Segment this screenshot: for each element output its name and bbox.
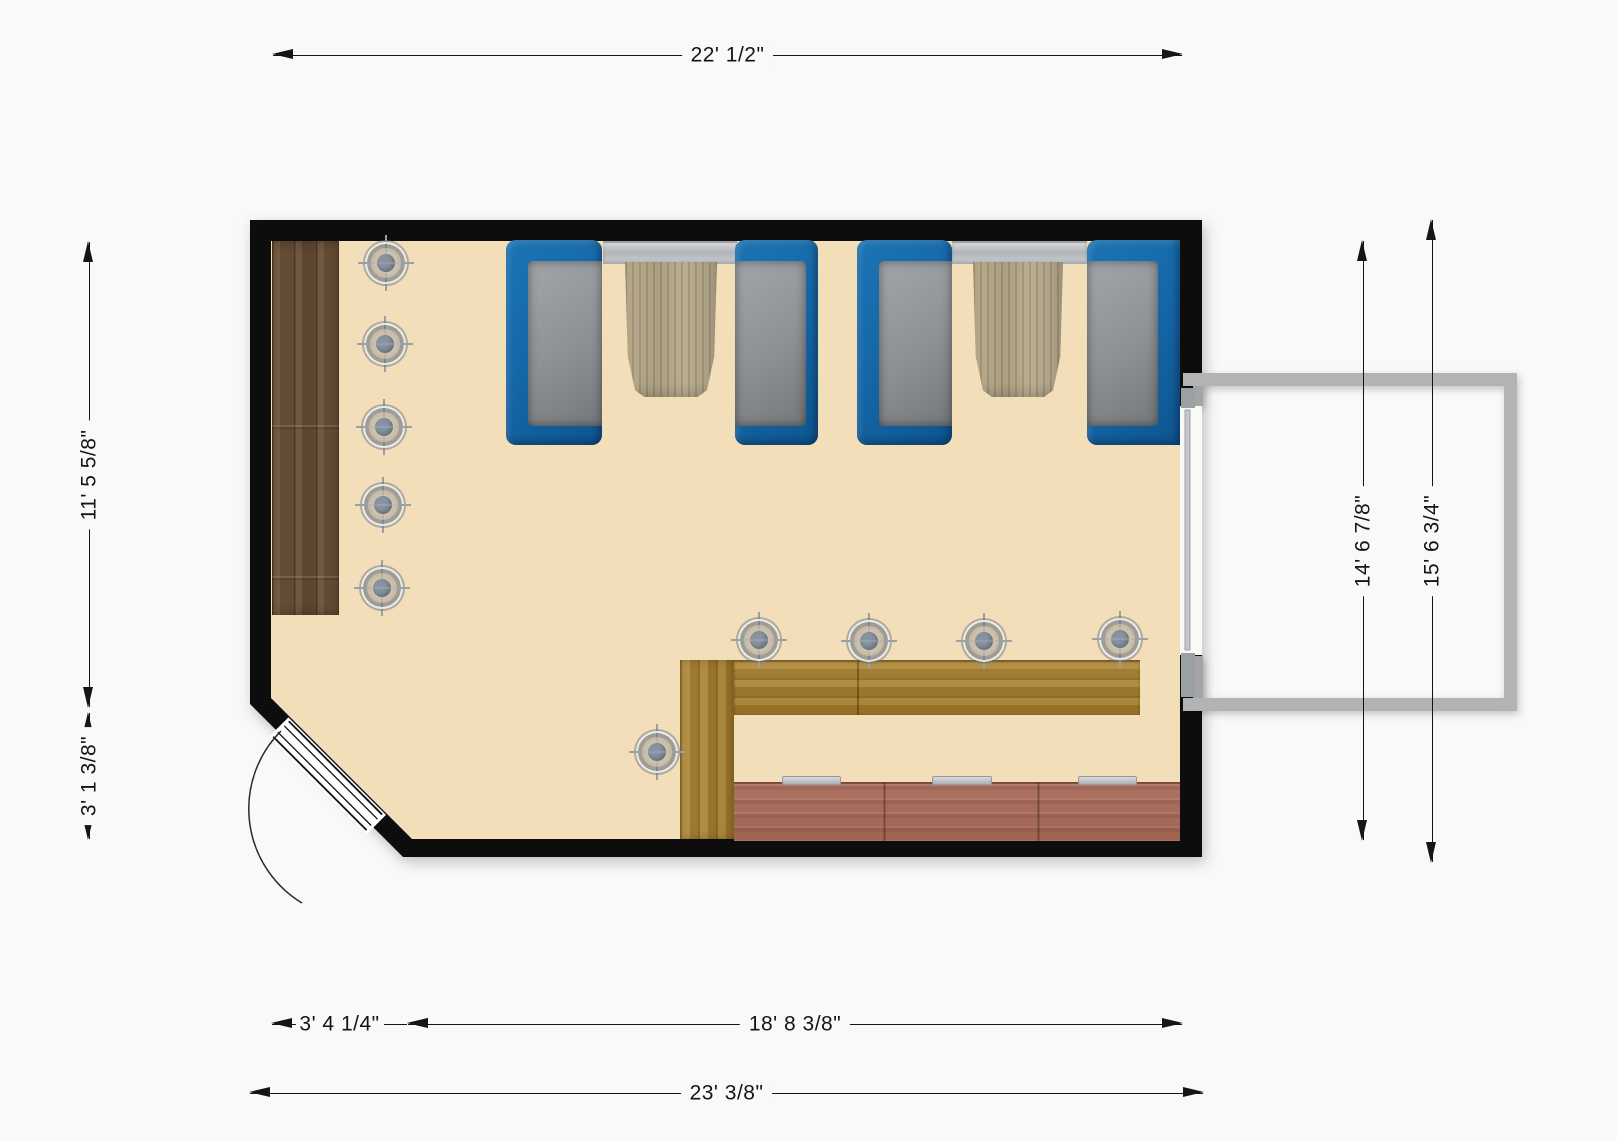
dimension-right-outer: 15' 6 3/4" <box>1432 220 1433 862</box>
dimension-left-lower: 3' 1 3/8" <box>89 713 90 839</box>
window-sill <box>603 241 737 264</box>
dimension-top: 22' 1/2" <box>273 55 1182 56</box>
dimension-label: 3' 4 1/4" <box>295 1014 383 1035</box>
dimension-bottom-wall: 18' 8 3/8" <box>408 1024 1182 1025</box>
dimension-right-inner: 14' 6 7/8" <box>1363 241 1364 840</box>
kitchen-floor <box>734 782 1180 841</box>
door-jamb-bottom <box>1181 653 1195 697</box>
dimension-left-upper: 11' 5 5/8" <box>89 242 90 707</box>
equipment-strip <box>782 776 841 785</box>
dimension-bottom-chamfer: 3' 4 1/4" <box>272 1024 407 1025</box>
porch-outline <box>1183 373 1517 711</box>
dimension-label: 11' 5 5/8" <box>79 420 100 529</box>
dimension-label: 3' 1 3/8" <box>79 727 100 825</box>
bench-cushion <box>735 261 806 426</box>
booth-bench <box>857 240 952 445</box>
booth-bench <box>1087 240 1180 445</box>
bench-cushion <box>879 261 952 426</box>
sliding-door-leaf <box>1185 410 1190 650</box>
booth-table <box>625 262 717 397</box>
right-wall-opening <box>1180 406 1202 655</box>
counter-leg <box>680 660 734 839</box>
bench-cushion <box>528 261 602 426</box>
bench-cushion <box>1087 261 1158 426</box>
booth-bench <box>506 240 602 445</box>
door-jamb-top <box>1181 388 1195 408</box>
dimension-label: 23' 3/8" <box>681 1083 773 1104</box>
dimension-label: 15' 6 3/4" <box>1422 486 1443 596</box>
dimension-label: 14' 6 7/8" <box>1353 485 1374 595</box>
counter-top <box>734 660 1140 715</box>
dimension-label: 22' 1/2" <box>682 45 774 66</box>
booth-table <box>973 262 1063 397</box>
wood-floor-strip <box>272 241 339 615</box>
equipment-strip <box>932 776 992 785</box>
floor-plan-canvas: 22' 1/2" 11' 5 5/8" 3' 1 3/8" 14' 6 7/8"… <box>0 0 1617 1141</box>
dimension-label: 18' 8 3/8" <box>740 1014 850 1035</box>
window-sill <box>952 241 1087 264</box>
dimension-bottom-total: 23' 3/8" <box>250 1093 1203 1094</box>
booth-bench <box>735 240 818 445</box>
equipment-strip <box>1078 776 1137 785</box>
